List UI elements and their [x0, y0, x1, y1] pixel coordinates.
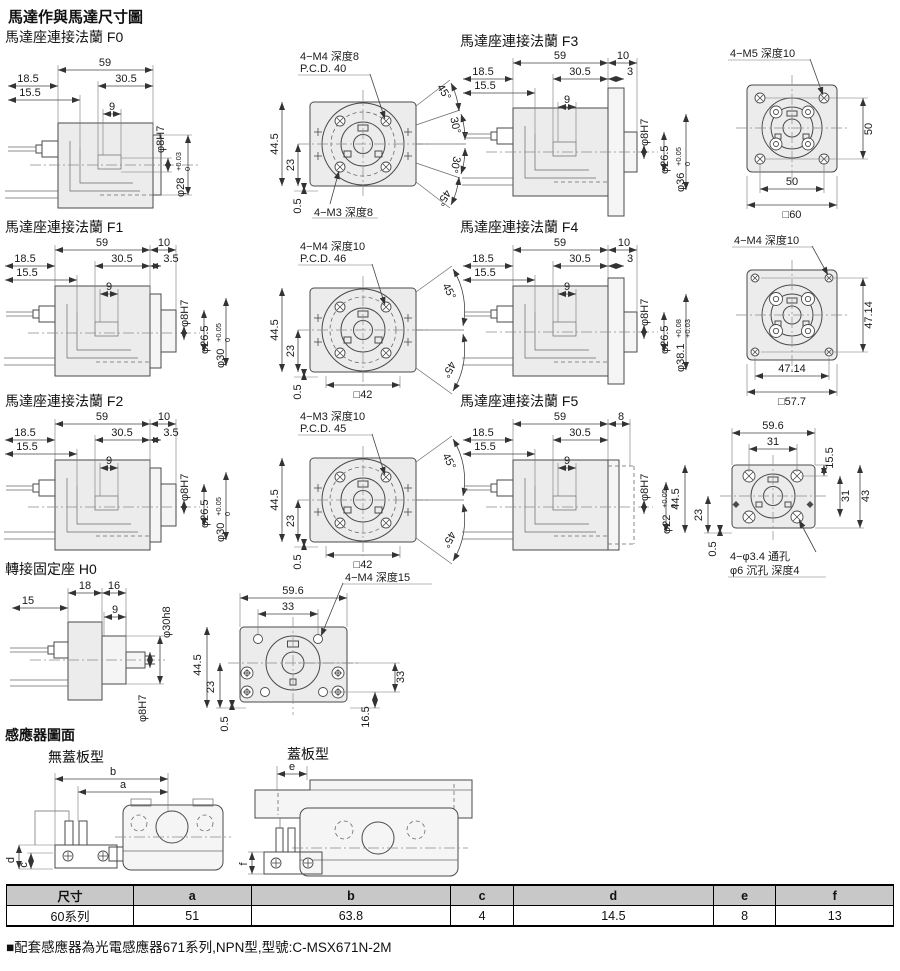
svg-text:c: c — [18, 862, 30, 868]
svg-text:59: 59 — [554, 237, 566, 249]
svg-text:18.5: 18.5 — [14, 253, 35, 265]
svg-text:45°: 45° — [439, 281, 457, 301]
svg-text:44.5: 44.5 — [670, 488, 682, 509]
section-label-sensor: 感應器圖面 — [5, 725, 75, 745]
table-header-e: e — [713, 885, 776, 906]
svg-text:φ38.1: φ38.1 — [675, 343, 687, 372]
svg-text:18.5: 18.5 — [472, 66, 493, 78]
section-label-f3: 馬達座連接法蘭 F3 — [460, 31, 578, 51]
table-cell-c: 4 — [451, 906, 514, 927]
svg-text:φ8H7: φ8H7 — [639, 119, 651, 146]
f4-side-view-drawing: 59 10 30.5 3 18.5 15.5 9 φ8H7 φ26.5 φ38.… — [458, 236, 703, 396]
svg-text:d: d — [5, 857, 17, 863]
svg-text:23: 23 — [693, 509, 705, 521]
h0-side-geometry — [10, 622, 165, 700]
svg-text:9: 9 — [564, 94, 570, 106]
svg-text:4−M5 深度10: 4−M5 深度10 — [730, 46, 795, 60]
svg-text:P.C.D. 40: P.C.D. 40 — [300, 63, 346, 75]
svg-text:44.5: 44.5 — [192, 654, 204, 675]
f0-front-view-drawing: 4−M4 深度8 P.C.D. 40 44.5 23 0.5 45° — [248, 48, 463, 218]
svg-text:10: 10 — [158, 237, 170, 249]
svg-text:4−M4 深度8: 4−M4 深度8 — [300, 49, 359, 63]
h0-front-geometry — [228, 617, 360, 715]
table-header-a: a — [134, 885, 252, 906]
sensor-left-label: 無蓋板型 — [48, 747, 104, 767]
svg-text:3.5: 3.5 — [163, 253, 178, 265]
svg-text:15.5: 15.5 — [16, 267, 37, 279]
svg-text:33: 33 — [395, 671, 407, 683]
svg-text:9: 9 — [106, 455, 112, 467]
sensor-no-cover-geometry — [35, 799, 231, 870]
svg-text:f: f — [238, 862, 250, 866]
svg-text:45°: 45° — [439, 529, 457, 549]
svg-text:+0.03: +0.03 — [683, 319, 692, 338]
svg-text:15.5: 15.5 — [474, 441, 495, 453]
svg-text:φ8H7: φ8H7 — [179, 300, 191, 327]
f2-front-view-drawing: 4−M3 深度10 P.C.D. 45 44.5 23 0.5 45° 45° — [248, 408, 463, 578]
f5-front-view-drawing: 59.6 31 15.5 44.5 23 0.5 31 43 4−φ3.4 通孔… — [668, 400, 898, 580]
section-label-f2: 馬達座連接法蘭 F2 — [5, 391, 123, 411]
f1-front-view-drawing: 4−M4 深度10 P.C.D. 46 44.5 23 0.5 45° 45° — [248, 238, 463, 403]
svg-text:0.5: 0.5 — [219, 716, 231, 731]
svg-text:23: 23 — [285, 159, 297, 171]
svg-text:0.5: 0.5 — [292, 384, 304, 399]
svg-text:3: 3 — [627, 253, 633, 265]
svg-text:a: a — [120, 779, 127, 791]
svg-text:b: b — [110, 766, 116, 778]
section-label-f5: 馬達座連接法蘭 F5 — [460, 391, 578, 411]
svg-text:10: 10 — [618, 237, 630, 249]
h0-front-view-drawing: 59.6 33 4−M4 深度15 44.5 23 0.5 33 16.5 — [190, 565, 465, 730]
svg-text:18.5: 18.5 — [472, 253, 493, 265]
svg-text:30.5: 30.5 — [111, 427, 132, 439]
f5-front-geometry — [720, 455, 828, 540]
svg-text:9: 9 — [106, 281, 112, 293]
svg-text:3: 3 — [627, 66, 633, 78]
svg-text:15.5: 15.5 — [16, 441, 37, 453]
svg-text:φ26.5: φ26.5 — [199, 325, 211, 354]
page-title: 馬達作與馬達尺寸圖 — [8, 6, 143, 27]
svg-text:30.5: 30.5 — [111, 253, 132, 265]
dimension-table-value-row: 60系列 51 63.8 4 14.5 8 13 — [7, 906, 894, 927]
svg-text:φ26.5: φ26.5 — [199, 499, 211, 528]
dimension-table: 尺寸 a b c d e f 60系列 51 63.8 4 14.5 8 13 — [6, 884, 894, 927]
svg-text:φ36: φ36 — [675, 173, 687, 192]
svg-text:59: 59 — [554, 411, 566, 423]
svg-text:4−φ3.4 通孔: 4−φ3.4 通孔 — [730, 550, 790, 563]
dimension-table-header-row: 尺寸 a b c d e f — [7, 885, 894, 906]
svg-text:φ8H7: φ8H7 — [639, 474, 651, 501]
svg-text:9: 9 — [564, 455, 570, 467]
svg-text:4−M3 深度8: 4−M3 深度8 — [314, 205, 373, 219]
section-label-f1: 馬達座連接法蘭 F1 — [5, 217, 123, 237]
svg-text:45°: 45° — [434, 82, 453, 102]
svg-text:0.5: 0.5 — [707, 541, 719, 556]
svg-text:59.6: 59.6 — [282, 585, 303, 597]
svg-text:□60: □60 — [783, 209, 802, 221]
svg-text:□42: □42 — [354, 389, 373, 401]
svg-text:P.C.D. 45: P.C.D. 45 — [300, 423, 346, 435]
svg-text:59: 59 — [96, 237, 108, 249]
table-header-d: d — [513, 885, 713, 906]
svg-text:30.5: 30.5 — [569, 427, 590, 439]
svg-text:15.5: 15.5 — [474, 80, 495, 92]
svg-text:φ8H7: φ8H7 — [155, 126, 167, 153]
f2-front-geometry — [298, 446, 428, 556]
table-cell-series: 60系列 — [7, 906, 134, 927]
svg-text:φ6 沉孔 深度4: φ6 沉孔 深度4 — [730, 563, 799, 577]
svg-text:30.5: 30.5 — [115, 73, 136, 85]
f1-front-geometry — [298, 276, 428, 386]
svg-text:e: e — [289, 761, 295, 773]
svg-text:33: 33 — [282, 601, 294, 613]
svg-text:44.5: 44.5 — [269, 319, 281, 340]
svg-text:10: 10 — [158, 411, 170, 423]
f4-front-view-drawing: 4−M4 深度10 47.14 47.14 □57.7 — [700, 232, 895, 400]
svg-text:47.14: 47.14 — [778, 363, 806, 375]
svg-text:P.C.D. 46: P.C.D. 46 — [300, 253, 346, 265]
svg-text:9: 9 — [564, 281, 570, 293]
svg-text:0: 0 — [183, 167, 192, 171]
svg-text:30.5: 30.5 — [569, 66, 590, 78]
sensor-no-cover-drawing: b a d c — [5, 765, 240, 883]
table-cell-b: 63.8 — [251, 906, 451, 927]
table-header-c: c — [451, 885, 514, 906]
f3-front-geometry — [736, 75, 848, 185]
svg-text:47.14: 47.14 — [863, 301, 875, 329]
svg-text:43: 43 — [860, 490, 872, 502]
table-cell-e: 8 — [713, 906, 776, 927]
table-cell-a: 51 — [134, 906, 252, 927]
svg-text:23: 23 — [285, 515, 297, 527]
svg-text:59: 59 — [99, 57, 111, 69]
svg-text:18.5: 18.5 — [472, 427, 493, 439]
svg-text:0.5: 0.5 — [292, 198, 304, 213]
svg-text:50: 50 — [863, 123, 875, 135]
table-header-f: f — [776, 885, 894, 906]
section-label-f4: 馬達座連接法蘭 F4 — [460, 217, 578, 237]
f4-front-geometry — [736, 260, 848, 372]
table-cell-d: 14.5 — [513, 906, 713, 927]
svg-text:44.5: 44.5 — [269, 489, 281, 510]
svg-text:18: 18 — [79, 580, 91, 592]
f1-side-geometry — [4, 286, 200, 376]
section-label-h0: 轉接固定座 H0 — [5, 559, 97, 579]
svg-text:16: 16 — [108, 580, 120, 592]
svg-text:3.5: 3.5 — [163, 427, 178, 439]
f5-side-view-drawing: 59 8 30.5 18.5 15.5 9 φ8H7 φ22 +0.05 0 — [458, 410, 698, 570]
f1-side-view-drawing: 59 10 30.5 3.5 18.5 15.5 9 φ8H7 φ26.5 φ3… — [0, 236, 250, 396]
svg-text:59: 59 — [554, 50, 566, 62]
svg-text:16.5: 16.5 — [360, 706, 372, 727]
svg-text:φ26.5: φ26.5 — [659, 145, 671, 174]
svg-text:+0.08: +0.08 — [674, 319, 683, 338]
catalog-page: 馬達作與馬達尺寸圖 馬達座連接法蘭 F0 59 — [0, 0, 900, 971]
svg-text:φ30: φ30 — [215, 349, 227, 368]
svg-text:44.5: 44.5 — [269, 133, 281, 154]
svg-text:φ28: φ28 — [175, 178, 187, 197]
svg-text:φ8H7: φ8H7 — [137, 695, 149, 722]
f0-front-geometry — [298, 90, 428, 198]
svg-text:4−M3 深度10: 4−M3 深度10 — [300, 409, 365, 423]
svg-text:31: 31 — [840, 490, 852, 502]
svg-text:+0.03: +0.03 — [174, 152, 183, 171]
sensor-with-cover-geometry — [255, 780, 472, 876]
sensor-with-cover-drawing: e f — [240, 760, 480, 885]
svg-text:+0.05: +0.05 — [214, 497, 223, 516]
svg-text:+0.05: +0.05 — [214, 323, 223, 342]
svg-text:45°: 45° — [434, 187, 453, 207]
svg-text:15: 15 — [22, 595, 34, 607]
svg-text:59: 59 — [96, 411, 108, 423]
svg-text:59.6: 59.6 — [762, 420, 783, 432]
table-cell-f: 13 — [776, 906, 894, 927]
svg-text:45°: 45° — [439, 451, 457, 471]
svg-text:15.5: 15.5 — [19, 87, 40, 99]
svg-text:15.5: 15.5 — [824, 447, 836, 468]
svg-text:18.5: 18.5 — [17, 73, 38, 85]
svg-text:φ30h8: φ30h8 — [161, 606, 173, 638]
svg-text:8: 8 — [618, 411, 624, 423]
f3-side-view-drawing: 59 10 30.5 3 18.5 15.5 9 φ8H7 φ26.5 φ36 … — [458, 50, 698, 218]
svg-text:4−M4 深度10: 4−M4 深度10 — [734, 233, 799, 247]
svg-text:0: 0 — [683, 162, 692, 166]
svg-text:50: 50 — [786, 176, 798, 188]
svg-text:23: 23 — [205, 681, 217, 693]
svg-text:4−M4 深度15: 4−M4 深度15 — [345, 570, 410, 584]
svg-text:23: 23 — [285, 345, 297, 357]
svg-text:φ8H7: φ8H7 — [639, 299, 651, 326]
section-label-f0: 馬達座連接法蘭 F0 — [5, 27, 123, 47]
svg-text:0: 0 — [223, 512, 232, 516]
svg-text:9: 9 — [112, 604, 118, 616]
f2-side-view-drawing: 59 10 30.5 3.5 18.5 15.5 9 φ8H7 φ26.5 φ3… — [0, 410, 250, 570]
table-header-b: b — [251, 885, 451, 906]
svg-text:9: 9 — [109, 101, 115, 113]
svg-text:+0.05: +0.05 — [674, 147, 683, 166]
svg-text:φ30: φ30 — [215, 523, 227, 542]
svg-text:30.5: 30.5 — [569, 253, 590, 265]
table-header-size: 尺寸 — [7, 885, 134, 906]
svg-text:45°: 45° — [439, 359, 457, 379]
svg-text:0: 0 — [223, 338, 232, 342]
svg-text:10: 10 — [617, 50, 629, 62]
f5-side-geometry — [462, 460, 653, 550]
footnote: ■配套感應器為光電感應器671系列,NPN型,型號:C-MSX671N-2M — [6, 936, 391, 956]
svg-text:18.5: 18.5 — [14, 427, 35, 439]
f0-side-view-drawing: 59 30.5 18.5 15.5 9 φ8H7 φ28 +0.03 0 — [0, 45, 245, 210]
f3-front-view-drawing: 4−M5 深度10 50 50 □60 — [700, 45, 895, 220]
svg-text:φ8H7: φ8H7 — [179, 474, 191, 501]
svg-text:15.5: 15.5 — [474, 267, 495, 279]
svg-text:4−M4 深度10: 4−M4 深度10 — [300, 239, 365, 253]
f2-side-geometry — [4, 460, 200, 550]
svg-text:31: 31 — [767, 436, 779, 448]
svg-text:φ26.5: φ26.5 — [659, 325, 671, 354]
